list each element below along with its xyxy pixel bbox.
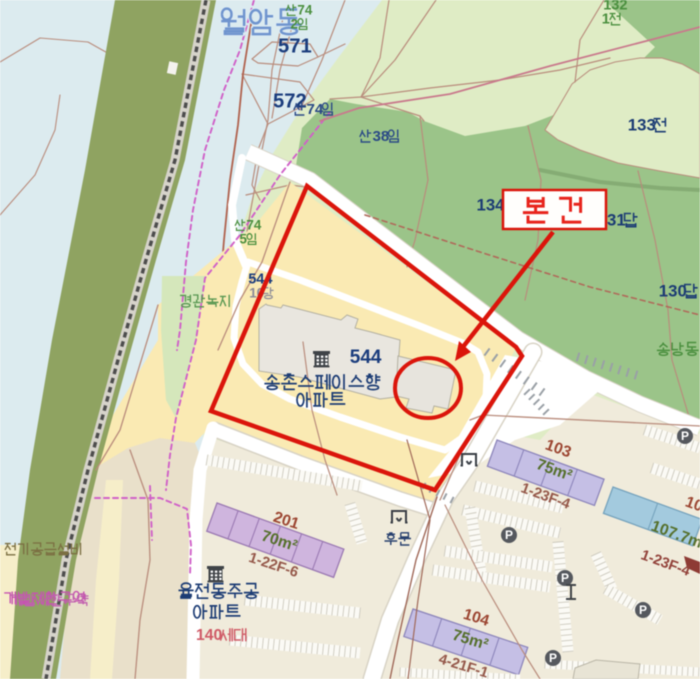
svg-text:P: P bbox=[505, 528, 513, 542]
svg-text:133: 133 bbox=[628, 115, 656, 134]
svg-text:5: 5 bbox=[240, 231, 248, 246]
svg-text:P: P bbox=[639, 603, 647, 617]
svg-text:P: P bbox=[561, 571, 569, 585]
svg-text:571: 571 bbox=[278, 36, 312, 58]
svg-text:74: 74 bbox=[307, 101, 324, 118]
svg-text:1: 1 bbox=[602, 12, 610, 28]
svg-text:74: 74 bbox=[297, 2, 312, 17]
svg-text:544: 544 bbox=[350, 347, 382, 368]
svg-text:31: 31 bbox=[607, 210, 626, 229]
svg-text:P: P bbox=[681, 429, 689, 443]
svg-text:38: 38 bbox=[373, 128, 390, 145]
svg-text:74: 74 bbox=[246, 217, 261, 232]
svg-text:P: P bbox=[549, 651, 557, 665]
svg-text:134: 134 bbox=[477, 195, 506, 214]
svg-text:2: 2 bbox=[291, 16, 298, 31]
svg-text:130: 130 bbox=[659, 281, 687, 300]
svg-text:140: 140 bbox=[196, 627, 222, 644]
